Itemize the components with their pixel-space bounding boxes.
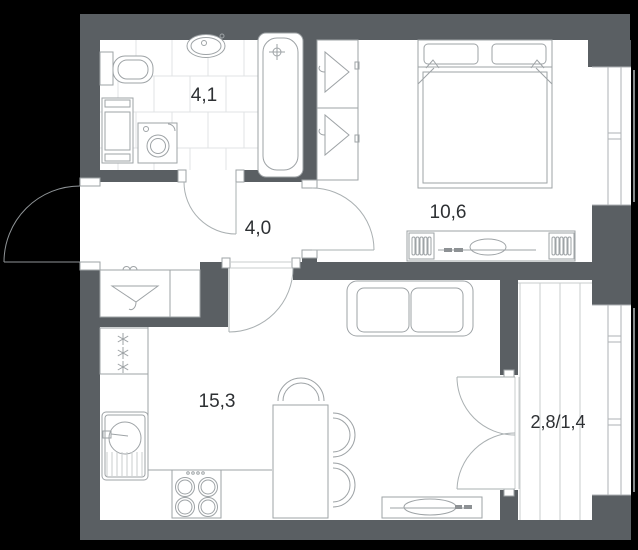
floor-plan-page: 4,1 4,0 10,6 15,3 2,8/1,4 [0,0,638,550]
bed-symbol [418,40,552,188]
bathroom-cabinet-symbol [102,98,133,163]
bedroom-area-label: 10,6 [430,202,467,223]
hallway-area-label: 4,0 [245,218,271,239]
living-kitchen-area-label: 15,3 [199,391,236,412]
balcony-area-label: 2,8/1,4 [530,412,585,432]
toilet-symbol [100,52,153,85]
bathroom-sink-symbol [187,34,225,58]
bathtub-symbol [258,33,303,177]
bathroom-area-label: 4,1 [191,85,217,106]
tv-console-symbol [407,231,575,261]
dining-table-symbol [273,405,328,518]
stove-symbol [172,470,221,518]
washing-machine-symbol [138,123,177,163]
floor-plan-canvas: 4,1 4,0 10,6 15,3 2,8/1,4 [0,0,638,550]
wardrobe-symbol [317,40,359,180]
